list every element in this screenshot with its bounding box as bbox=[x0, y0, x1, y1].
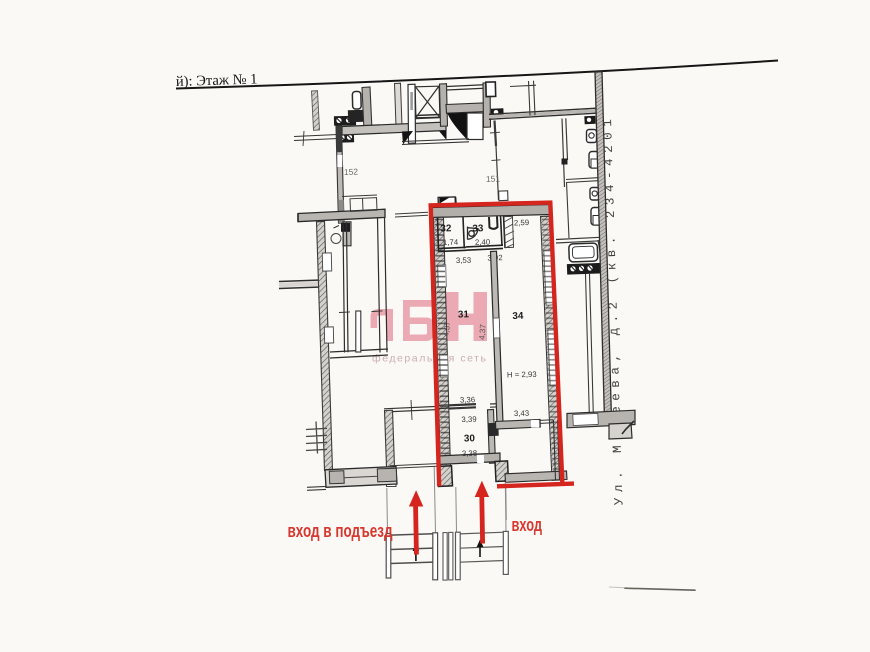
svg-text:H = 2,93: H = 2,93 bbox=[507, 370, 537, 380]
svg-text:31: 31 bbox=[458, 309, 470, 320]
svg-text:3,38: 3,38 bbox=[462, 449, 477, 458]
svg-text:3,43: 3,43 bbox=[514, 409, 529, 418]
svg-text:34: 34 bbox=[512, 311, 524, 322]
svg-text:3,53: 3,53 bbox=[456, 256, 471, 265]
svg-text:151: 151 bbox=[486, 173, 501, 183]
svg-text:30: 30 bbox=[464, 433, 476, 444]
svg-text:2,59: 2,59 bbox=[514, 218, 529, 228]
svg-text:152: 152 bbox=[344, 167, 359, 177]
svg-text:32: 32 bbox=[440, 223, 452, 234]
svg-text:вход: вход bbox=[512, 515, 543, 535]
svg-text:федеральная сеть: федеральная сеть bbox=[372, 353, 488, 365]
svg-text:вход в подъезд: вход в подъезд bbox=[288, 521, 393, 541]
svg-text:1,74: 1,74 bbox=[443, 238, 459, 247]
svg-text:3,36: 3,36 bbox=[460, 395, 475, 404]
svg-text:4,37: 4,37 bbox=[478, 323, 488, 340]
svg-text:2,40: 2,40 bbox=[475, 237, 491, 246]
svg-text:33: 33 bbox=[472, 223, 484, 234]
svg-text:4,37: 4,37 bbox=[442, 320, 453, 337]
svg-text:3,39: 3,39 bbox=[461, 415, 476, 424]
